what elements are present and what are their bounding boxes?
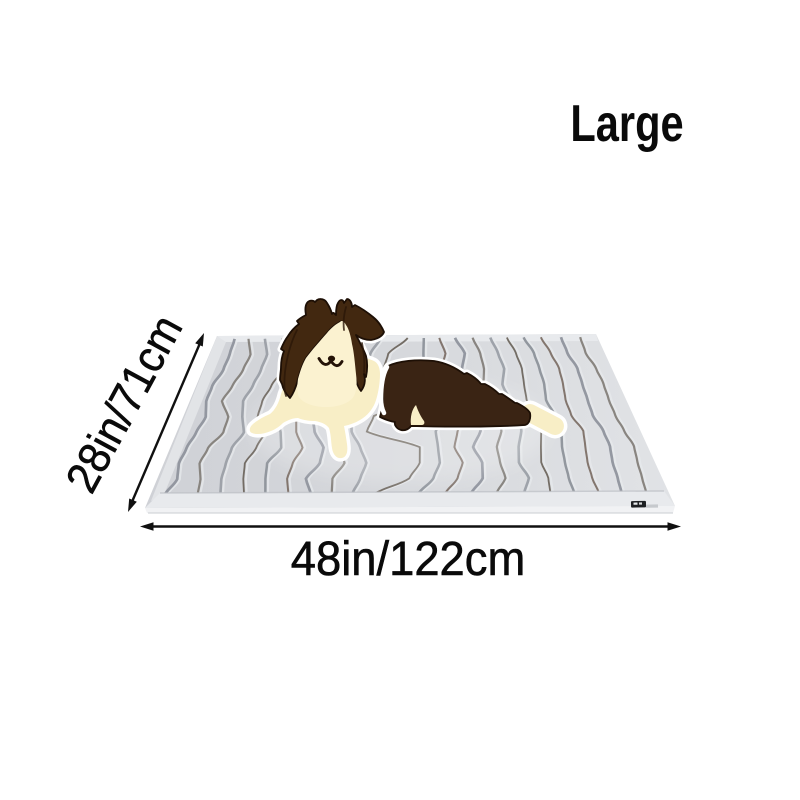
svg-text:48in/122cm: 48in/122cm xyxy=(291,532,525,585)
svg-text:Large: Large xyxy=(570,94,683,153)
